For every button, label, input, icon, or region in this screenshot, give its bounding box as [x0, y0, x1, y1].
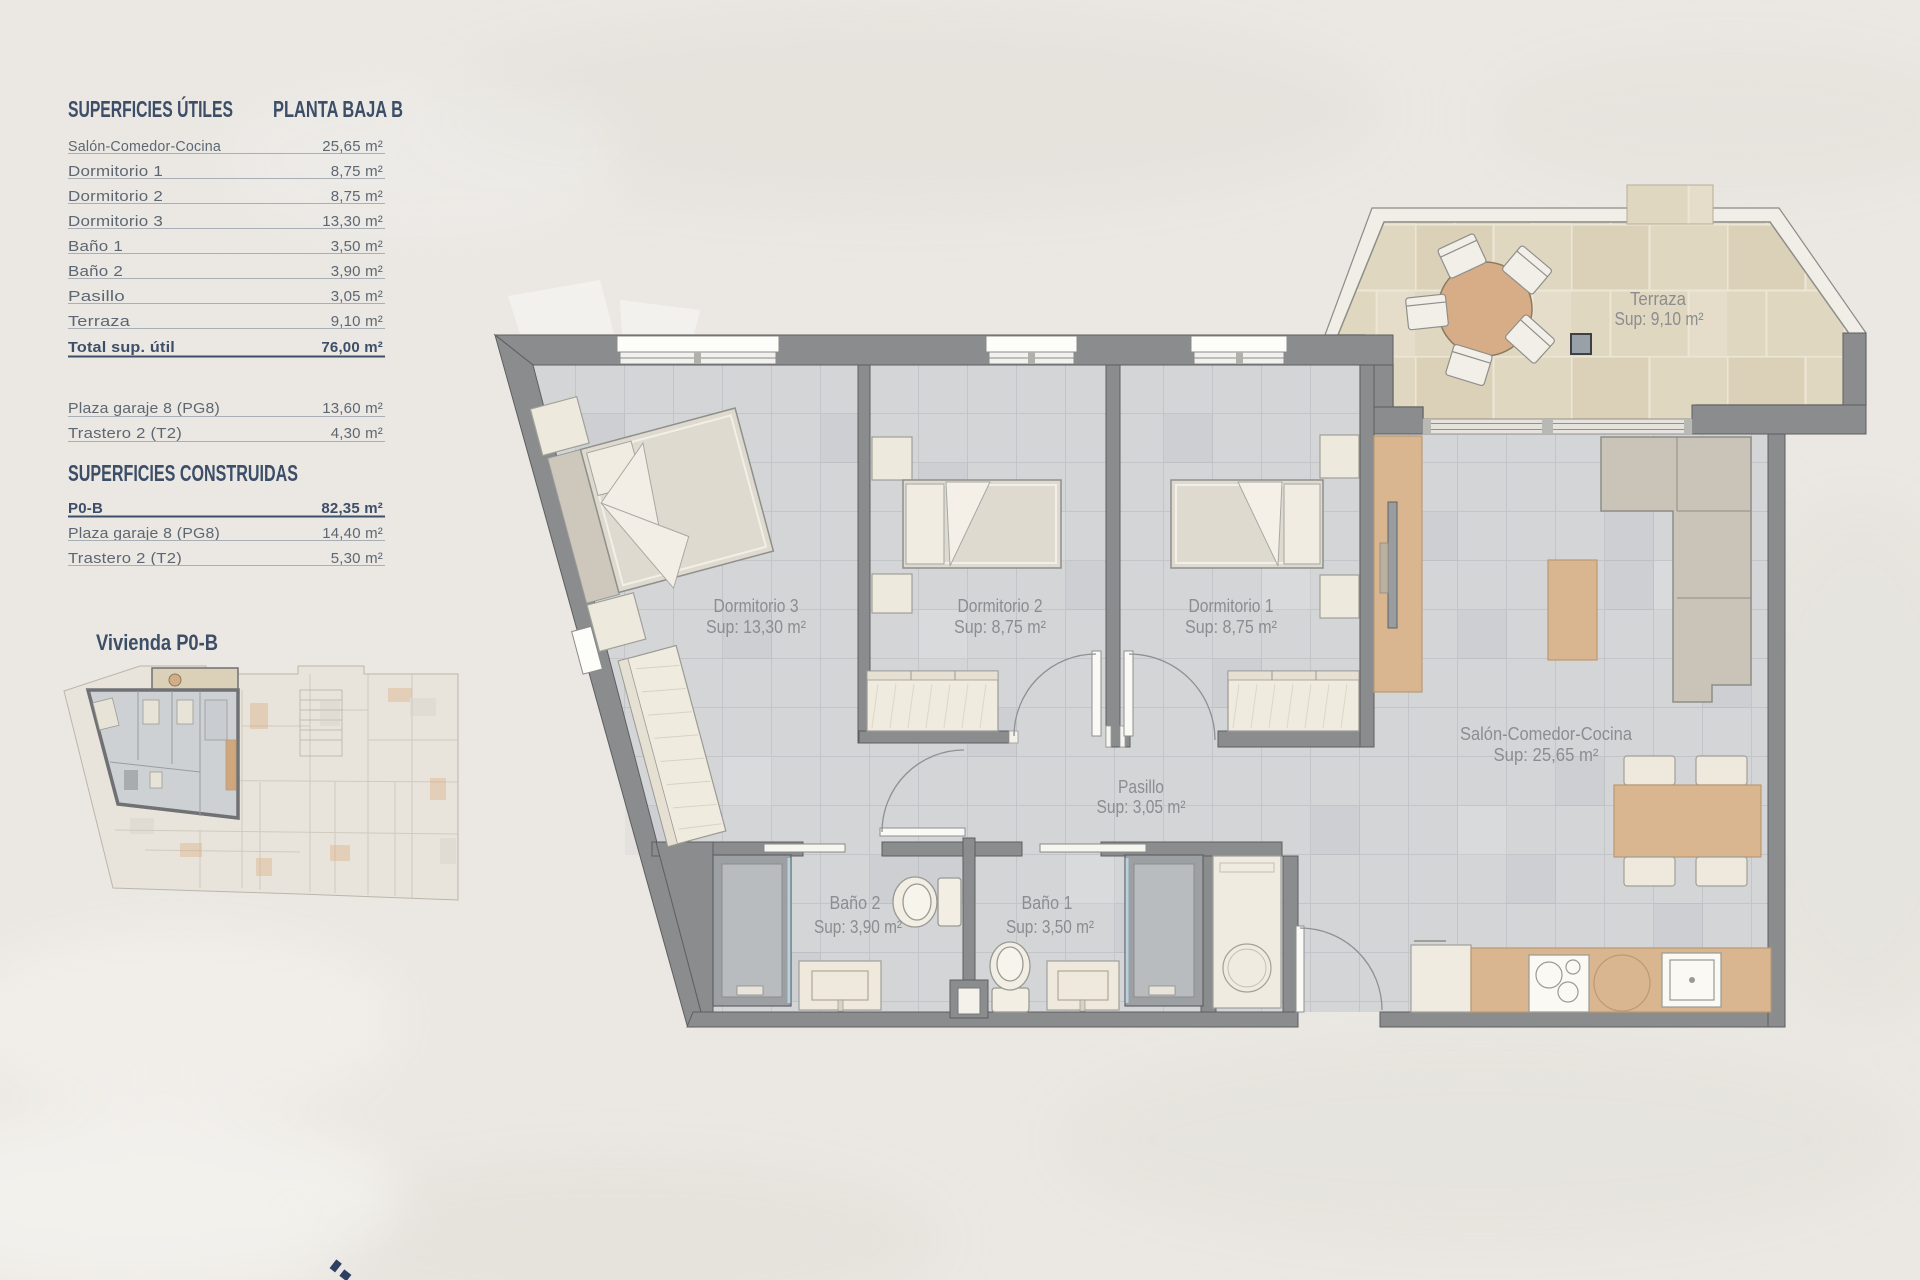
svg-text:Plaza garaje 8 (PG8): Plaza garaje 8 (PG8) — [68, 400, 220, 417]
svg-text:Sup: 3,05 m²: Sup: 3,05 m² — [1097, 797, 1186, 817]
svg-text:Baño 2: Baño 2 — [68, 263, 123, 280]
svg-text:14,40 m²: 14,40 m² — [322, 525, 383, 542]
svg-text:4,30 m²: 4,30 m² — [331, 425, 383, 442]
svg-text:3,05 m²: 3,05 m² — [331, 288, 383, 305]
svg-text:3,50 m²: 3,50 m² — [331, 238, 383, 255]
svg-text:Sup: 13,30 m²: Sup: 13,30 m² — [706, 617, 806, 637]
svg-text:Baño 1: Baño 1 — [1022, 893, 1073, 913]
svg-text:PLANTA BAJA B: PLANTA BAJA B — [273, 96, 403, 122]
svg-text:Total sup. útil: Total sup. útil — [68, 339, 175, 356]
svg-text:5,30 m²: 5,30 m² — [331, 550, 383, 567]
svg-text:Terraza: Terraza — [68, 313, 131, 330]
svg-text:Baño 1: Baño 1 — [68, 238, 123, 255]
svg-text:Sup: 9,10 m²: Sup: 9,10 m² — [1615, 309, 1704, 329]
svg-text:Trastero 2 (T2): Trastero 2 (T2) — [68, 550, 182, 567]
svg-text:P0-B: P0-B — [68, 500, 103, 517]
svg-text:Dormitorio 1: Dormitorio 1 — [1189, 596, 1274, 616]
svg-text:13,60 m²: 13,60 m² — [322, 400, 383, 417]
svg-text:Dormitorio 3: Dormitorio 3 — [714, 596, 799, 616]
svg-text:76,00 m²: 76,00 m² — [321, 339, 383, 356]
svg-text:Dormitorio 1: Dormitorio 1 — [68, 163, 163, 180]
svg-text:8,75 m²: 8,75 m² — [331, 188, 383, 205]
svg-text:82,35 m²: 82,35 m² — [321, 500, 383, 517]
svg-text:Sup: 8,75 m²: Sup: 8,75 m² — [954, 617, 1046, 637]
svg-text:9,10 m²: 9,10 m² — [331, 313, 383, 330]
svg-text:SUPERFICIES ÚTILES: SUPERFICIES ÚTILES — [68, 95, 233, 122]
svg-text:Sup: 8,75 m²: Sup: 8,75 m² — [1185, 617, 1277, 637]
svg-text:Dormitorio 2: Dormitorio 2 — [68, 188, 163, 205]
svg-text:Dormitorio 3: Dormitorio 3 — [68, 213, 163, 230]
svg-text:Dormitorio 2: Dormitorio 2 — [958, 596, 1043, 616]
svg-text:SUPERFICIES CONSTRUIDAS: SUPERFICIES CONSTRUIDAS — [68, 460, 298, 486]
svg-text:Trastero 2 (T2): Trastero 2 (T2) — [68, 425, 182, 442]
svg-text:Sup: 3,90 m²: Sup: 3,90 m² — [814, 917, 902, 937]
svg-text:Vivienda P0-B: Vivienda P0-B — [96, 630, 218, 655]
svg-text:8,75 m²: 8,75 m² — [331, 163, 383, 180]
svg-text:3,90 m²: 3,90 m² — [331, 263, 383, 280]
svg-text:Sup: 25,65 m²: Sup: 25,65 m² — [1494, 745, 1599, 765]
svg-text:Pasillo: Pasillo — [68, 288, 125, 305]
svg-text:13,30 m²: 13,30 m² — [322, 213, 383, 230]
svg-text:Pasillo: Pasillo — [1118, 777, 1164, 797]
svg-text:Terraza: Terraza — [1630, 289, 1687, 309]
svg-text:Plaza garaje 8 (PG8): Plaza garaje 8 (PG8) — [68, 525, 220, 542]
svg-text:Baño 2: Baño 2 — [830, 893, 881, 913]
svg-text:Salón-Comedor-Cocina: Salón-Comedor-Cocina — [1460, 724, 1633, 744]
svg-text:Sup: 3,50 m²: Sup: 3,50 m² — [1006, 917, 1094, 937]
svg-text:25,65 m²: 25,65 m² — [322, 138, 383, 155]
svg-text:Salón-Comedor-Cocina: Salón-Comedor-Cocina — [68, 138, 221, 155]
